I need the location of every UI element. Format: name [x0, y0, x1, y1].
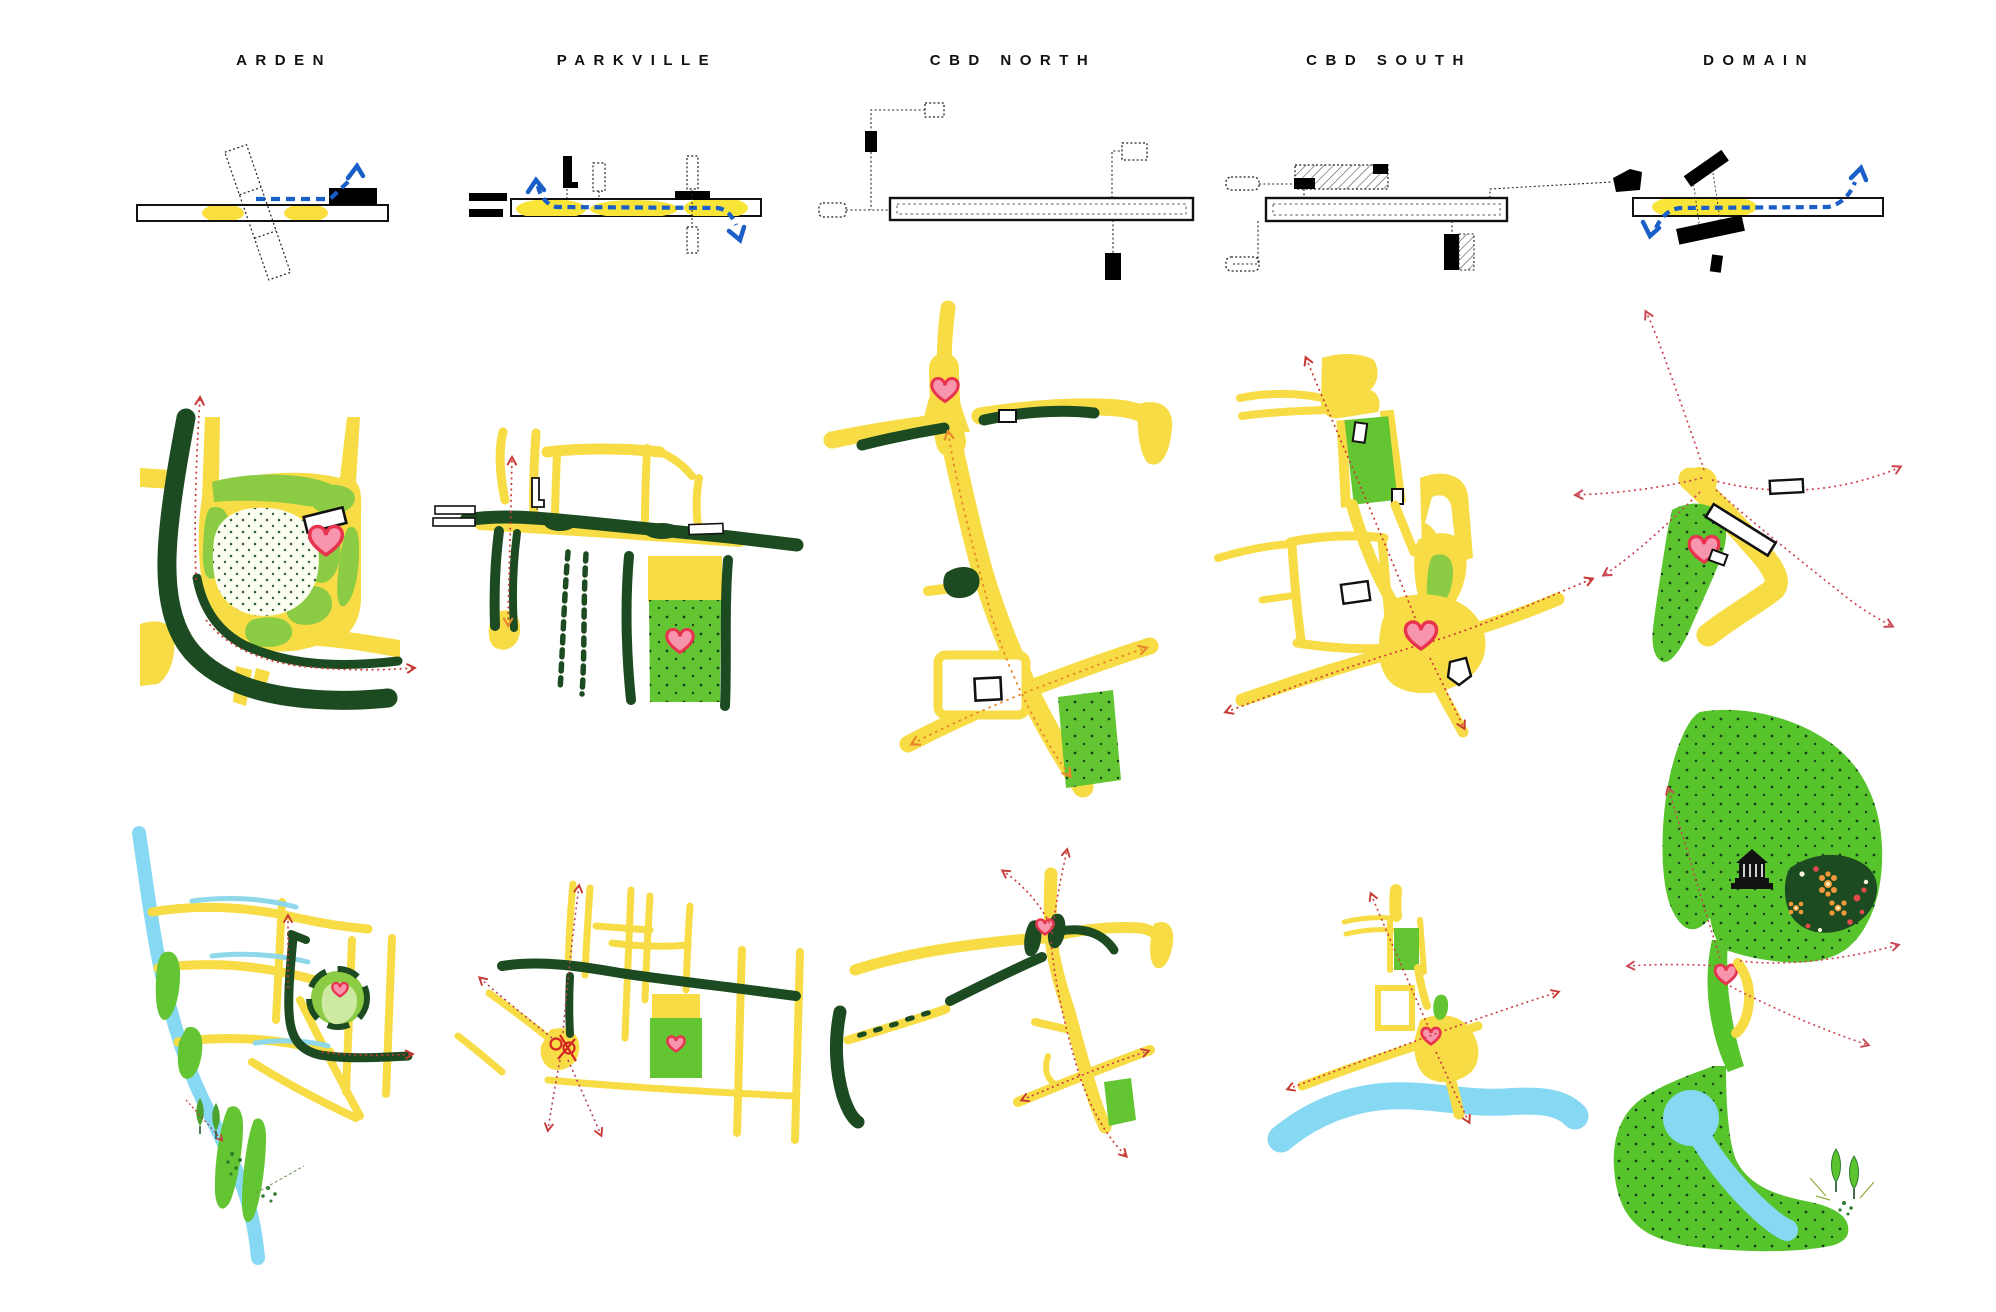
svg-text:CBD SOUTH: CBD SOUTH — [1306, 52, 1472, 69]
svg-text:DOMAIN: DOMAIN — [1703, 52, 1815, 69]
svg-text:ARDEN: ARDEN — [236, 52, 332, 69]
svg-text:PARKVILLE: PARKVILLE — [557, 52, 717, 69]
svg-text:CBD NORTH: CBD NORTH — [930, 52, 1097, 69]
